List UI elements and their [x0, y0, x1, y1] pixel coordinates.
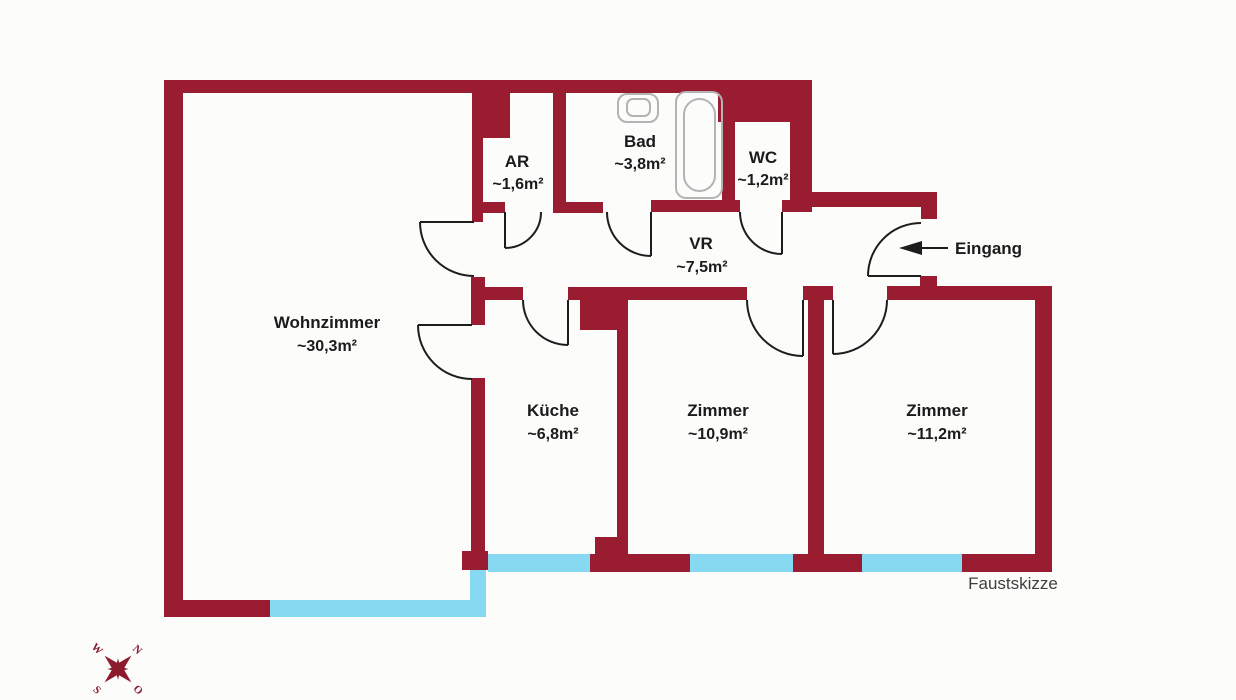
wall: [790, 192, 937, 207]
room-label-wc: WC: [749, 148, 777, 167]
wall: [553, 93, 566, 213]
room-label-vr: VR: [689, 234, 713, 253]
sketch-type-label: Faustskizze: [968, 574, 1058, 593]
wall: [462, 551, 488, 570]
wall: [718, 80, 812, 122]
wall: [568, 287, 628, 300]
room-area-ar: ~1,6m²: [492, 176, 543, 193]
wall: [617, 300, 628, 554]
wall: [483, 287, 523, 300]
wall: [590, 554, 690, 572]
wall: [565, 202, 603, 213]
entrance-label: Eingang: [955, 239, 1022, 258]
window-strip: [270, 600, 470, 617]
wall: [808, 300, 824, 554]
room-label-zimmer1: Zimmer: [687, 401, 749, 420]
window-strip: [862, 554, 962, 572]
room-area-kueche: ~6,8m²: [527, 426, 578, 443]
wall: [482, 202, 505, 213]
room-area-wohnzimmer: ~30,3m²: [297, 338, 357, 355]
room-label-wohnzimmer: Wohnzimmer: [274, 313, 381, 332]
wall: [164, 80, 812, 93]
wall: [471, 277, 485, 325]
floor-plan: Wohnzimmer ~30,3m² AR ~1,6m² Bad ~3,8m² …: [0, 0, 1236, 700]
room-area-bad: ~3,8m²: [614, 156, 665, 173]
room-area-vr: ~7,5m²: [676, 259, 727, 276]
window-strip: [470, 566, 486, 617]
wall: [471, 378, 485, 554]
wall: [1035, 286, 1052, 572]
wall: [595, 537, 620, 554]
room-area-zimmer2: ~11,2m²: [907, 426, 966, 443]
room-label-bad: Bad: [624, 132, 656, 151]
wall: [921, 207, 937, 219]
window-strip: [488, 554, 590, 572]
window-strip: [690, 554, 793, 572]
wall: [472, 93, 483, 222]
wall: [164, 80, 183, 617]
wall: [962, 554, 1052, 572]
wall: [793, 554, 862, 572]
room-area-wc: ~1,2m²: [737, 172, 788, 189]
wall: [887, 286, 1052, 300]
room-label-kueche: Küche: [527, 401, 579, 420]
wall: [803, 286, 833, 300]
wall: [164, 600, 270, 617]
wall: [628, 287, 747, 300]
room-label-ar: AR: [505, 152, 530, 171]
room-label-zimmer2: Zimmer: [906, 401, 968, 420]
room-area-zimmer1: ~10,9m²: [688, 426, 748, 443]
